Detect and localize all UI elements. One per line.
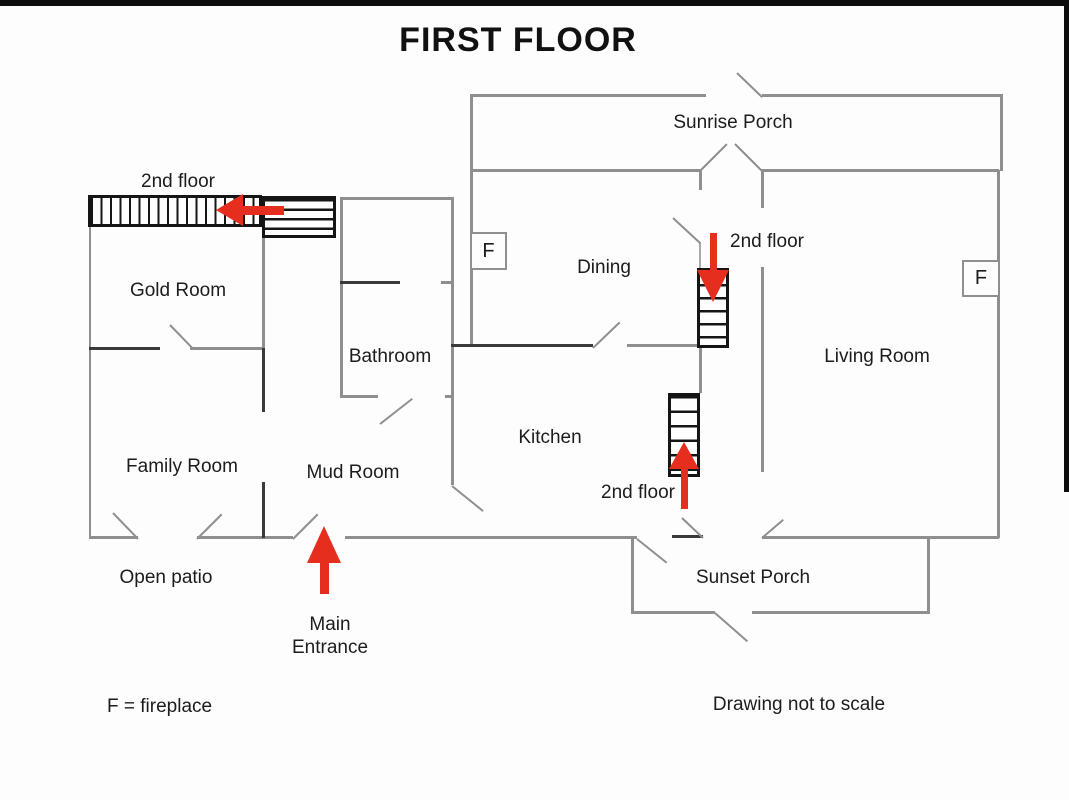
room-label-sunset-porch: Sunset Porch <box>696 567 810 590</box>
wall <box>470 94 473 346</box>
wall <box>89 347 160 350</box>
wall <box>762 536 999 539</box>
wall <box>340 395 378 398</box>
label-open-patio: Open patio <box>120 567 213 590</box>
wall <box>89 536 138 539</box>
wall <box>262 238 265 348</box>
wall <box>340 281 400 284</box>
page-title: FIRST FLOOR <box>399 21 637 60</box>
wall <box>752 611 930 614</box>
wall <box>927 538 930 613</box>
right-letterbox-bar <box>1064 0 1069 492</box>
wall <box>262 348 265 412</box>
door-swing <box>169 324 193 349</box>
floor-plan-diagram: FIRST FLOOR <box>0 0 1069 800</box>
label-second-floor-dining: 2nd floor <box>730 231 804 254</box>
label-second-floor-kitchen: 2nd floor <box>601 482 675 505</box>
door-swing <box>714 612 748 642</box>
door-swing <box>379 398 413 425</box>
label-second-floor-upper-left: 2nd floor <box>141 171 215 194</box>
fireplace-box-dining: F <box>470 232 507 270</box>
room-label-kitchen: Kitchen <box>518 427 581 450</box>
stairs-arrow-down-icon <box>697 233 729 302</box>
wall <box>340 197 452 200</box>
stairs-arrow-left-icon <box>216 194 284 226</box>
wall <box>762 94 1002 97</box>
note-not-to-scale: Drawing not to scale <box>713 694 885 717</box>
wall <box>470 94 706 97</box>
label-main-entrance-line2: Entrance <box>292 637 368 660</box>
room-label-living-room: Living Room <box>824 346 930 369</box>
room-label-family-room: Family Room <box>126 456 238 479</box>
wall <box>197 536 293 539</box>
wall <box>451 344 593 347</box>
wall <box>631 611 715 614</box>
door-swing <box>699 143 727 171</box>
wall <box>345 536 637 539</box>
room-label-bathroom: Bathroom <box>349 346 431 369</box>
main-entrance-arrow-icon <box>307 526 341 594</box>
fireplace-symbol: F <box>482 240 494 263</box>
fireplace-box-living: F <box>962 260 1000 297</box>
wall <box>441 281 452 284</box>
wall <box>631 538 634 613</box>
wall <box>997 170 1000 538</box>
label-main-entrance: Main Entrance <box>292 614 368 660</box>
door-swing <box>451 485 483 512</box>
door-swing <box>736 72 763 98</box>
wall <box>699 348 702 393</box>
wall <box>761 169 764 208</box>
wall <box>340 197 343 397</box>
wall <box>762 169 999 172</box>
wall <box>1000 94 1003 171</box>
top-letterbox-bar <box>0 0 1069 6</box>
wall <box>627 344 698 347</box>
wall <box>761 267 764 472</box>
room-label-dining: Dining <box>577 257 631 280</box>
wall <box>445 395 453 398</box>
door-swing <box>636 538 667 563</box>
wall <box>190 347 264 350</box>
room-label-sunrise-porch: Sunrise Porch <box>673 112 792 135</box>
room-label-gold-room: Gold Room <box>130 280 226 303</box>
wall <box>470 169 701 172</box>
wall <box>451 197 454 485</box>
legend-fireplace: F = fireplace <box>107 696 212 719</box>
door-swing <box>734 143 762 171</box>
wall <box>89 195 91 538</box>
wall <box>262 482 265 538</box>
fireplace-symbol: F <box>975 267 987 290</box>
door-swing <box>592 322 620 349</box>
room-label-mud-room: Mud Room <box>307 462 400 485</box>
label-main-entrance-line1: Main <box>292 614 368 637</box>
